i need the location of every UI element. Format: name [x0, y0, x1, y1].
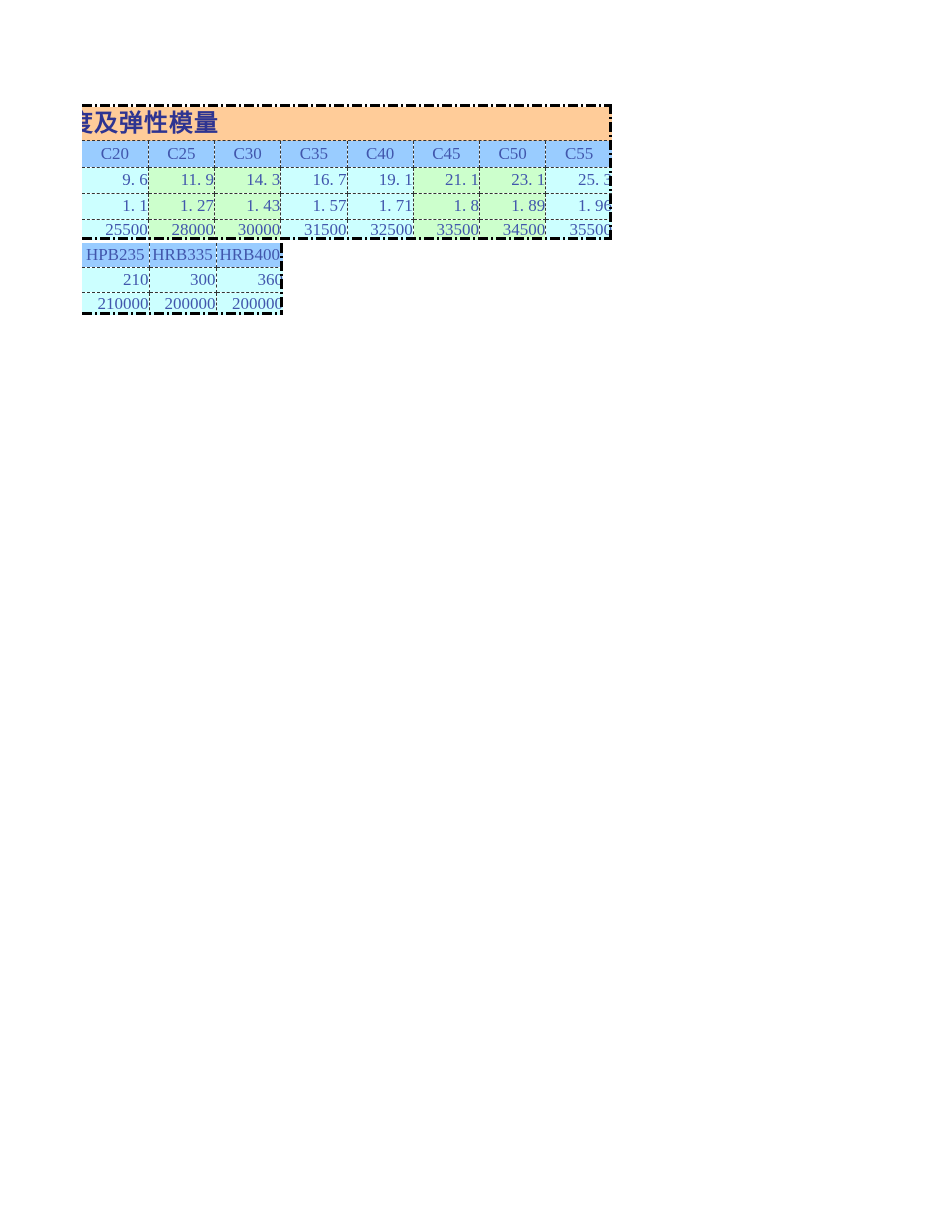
data-cell[interactable]: 1. 8: [413, 193, 479, 219]
data-cell[interactable]: 11. 9: [148, 167, 214, 193]
steel-header-row: HPB235 HRB335 HRB400: [82, 243, 283, 267]
steel-table: HPB235 HRB335 HRB400 210 300 360 210000 …: [82, 243, 283, 315]
table1-border-top: [82, 104, 612, 107]
steel-grid: HPB235 HRB335 HRB400 210 300 360 210000 …: [82, 243, 283, 315]
data-cell[interactable]: 1. 57: [281, 193, 347, 219]
data-cell[interactable]: 16. 7: [281, 167, 347, 193]
header-cell-c35[interactable]: C35: [281, 141, 347, 167]
header-cell-c25[interactable]: C25: [148, 141, 214, 167]
concrete-header-row: C20 C25 C30 C35 C40 C45 C50 C55: [82, 141, 612, 167]
header-cell-hrb400[interactable]: HRB400: [216, 243, 283, 267]
header-cell-hrb335[interactable]: HRB335: [149, 243, 216, 267]
data-cell[interactable]: 1. 27: [148, 193, 214, 219]
data-cell[interactable]: 21. 1: [413, 167, 479, 193]
table1-border-right: [609, 104, 612, 240]
data-cell[interactable]: 1. 43: [215, 193, 281, 219]
table2-border-right: [280, 243, 283, 315]
header-cell-hpb235[interactable]: HPB235: [82, 243, 149, 267]
header-cell-c40[interactable]: C40: [347, 141, 413, 167]
table-row: 1. 1 1. 27 1. 43 1. 57 1. 71 1. 8 1. 89 …: [82, 193, 612, 219]
table1-title-text: 度及弹性模量: [82, 107, 219, 140]
data-cell[interactable]: 25. 3: [546, 167, 612, 193]
table-row: 9. 6 11. 9 14. 3 16. 7 19. 1 21. 1 23. 1…: [82, 167, 612, 193]
data-cell[interactable]: 1. 71: [347, 193, 413, 219]
header-cell-c30[interactable]: C30: [215, 141, 281, 167]
header-cell-c20[interactable]: C20: [82, 141, 148, 167]
concrete-table: 度及弹性模量 C20 C25 C30 C35 C40 C45 C50 C55 9…: [82, 104, 612, 240]
data-cell[interactable]: 1. 96: [546, 193, 612, 219]
data-cell[interactable]: 9. 6: [82, 167, 148, 193]
data-cell[interactable]: 1. 89: [480, 193, 546, 219]
data-cell[interactable]: 300: [149, 267, 216, 292]
data-cell[interactable]: 23. 1: [480, 167, 546, 193]
data-cell[interactable]: 1. 1: [82, 193, 148, 219]
header-cell-c55[interactable]: C55: [546, 141, 612, 167]
data-cell[interactable]: 19. 1: [347, 167, 413, 193]
table1-title-cell[interactable]: 度及弹性模量: [82, 107, 612, 141]
header-cell-c50[interactable]: C50: [480, 141, 546, 167]
spreadsheet-canvas: 度及弹性模量 C20 C25 C30 C35 C40 C45 C50 C55 9…: [0, 0, 950, 1230]
header-cell-c45[interactable]: C45: [413, 141, 479, 167]
table2-border-bottom: [82, 312, 283, 315]
concrete-grid: C20 C25 C30 C35 C40 C45 C50 C55 9. 6 11.…: [82, 141, 612, 240]
data-cell[interactable]: 360: [216, 267, 283, 292]
table-row: 210 300 360: [82, 267, 283, 292]
data-cell[interactable]: 14. 3: [215, 167, 281, 193]
table1-border-bottom: [82, 237, 612, 240]
data-cell[interactable]: 210: [82, 267, 149, 292]
